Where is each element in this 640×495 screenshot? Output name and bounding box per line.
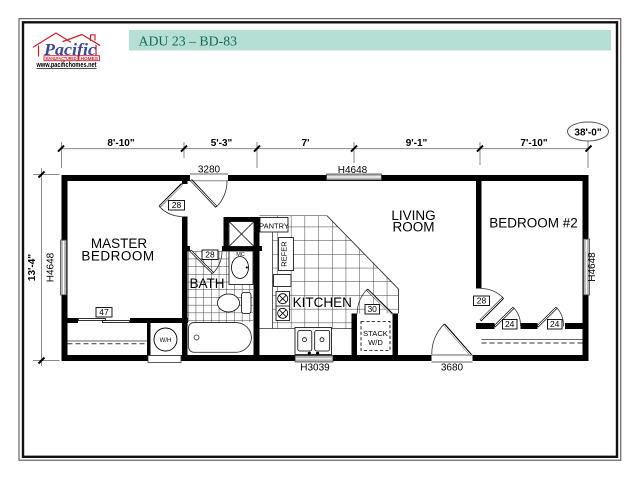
svg-text:H3039: H3039 bbox=[300, 363, 330, 374]
svg-text:BEDROOM: BEDROOM bbox=[81, 249, 154, 264]
svg-text:H4648: H4648 bbox=[587, 252, 598, 282]
svg-text:38'-0": 38'-0" bbox=[574, 128, 601, 139]
svg-text:3280: 3280 bbox=[198, 165, 221, 176]
svg-text:13'-4": 13'-4" bbox=[27, 254, 38, 281]
svg-text:28: 28 bbox=[205, 250, 215, 260]
svg-text:24: 24 bbox=[505, 319, 515, 329]
svg-text:W/H: W/H bbox=[160, 338, 172, 344]
svg-text:STACK: STACK bbox=[363, 329, 388, 338]
svg-text:KITCHEN: KITCHEN bbox=[293, 295, 352, 310]
svg-text:7': 7' bbox=[302, 138, 310, 149]
svg-text:47: 47 bbox=[99, 307, 109, 317]
svg-text:24: 24 bbox=[550, 319, 560, 329]
svg-text:7'-10": 7'-10" bbox=[520, 138, 547, 149]
svg-text:HOMES: HOMES bbox=[81, 56, 99, 61]
svg-text:REFER: REFER bbox=[279, 241, 288, 267]
svg-text:www.pacifichomes.net: www.pacifichomes.net bbox=[36, 62, 97, 69]
svg-text:30: 30 bbox=[367, 304, 377, 314]
svg-text:MANUFACTURED: MANUFACTURED bbox=[46, 56, 77, 61]
svg-text:PANTRY: PANTRY bbox=[259, 222, 289, 231]
svg-text:28: 28 bbox=[172, 200, 182, 210]
svg-text:H4648: H4648 bbox=[46, 252, 57, 282]
svg-text:9'-1": 9'-1" bbox=[406, 138, 428, 149]
svg-text:H4648: H4648 bbox=[338, 165, 368, 176]
svg-text:3680: 3680 bbox=[441, 363, 464, 374]
svg-text:ROOM: ROOM bbox=[393, 220, 435, 235]
svg-text:MC: MC bbox=[236, 252, 245, 258]
svg-text:BEDROOM #2: BEDROOM #2 bbox=[489, 216, 578, 231]
svg-text:28: 28 bbox=[477, 296, 487, 306]
svg-text:W/D: W/D bbox=[368, 338, 383, 347]
svg-text:8'-10": 8'-10" bbox=[107, 138, 134, 149]
svg-text:5'-3": 5'-3" bbox=[211, 138, 233, 149]
svg-text:BATH: BATH bbox=[189, 276, 224, 291]
svg-text:ADU 23 – BD-83: ADU 23 – BD-83 bbox=[139, 33, 238, 48]
